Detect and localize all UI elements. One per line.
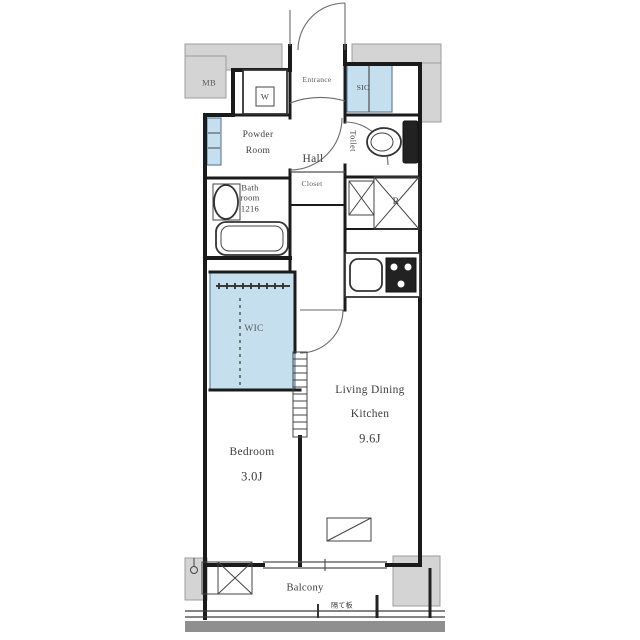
entrance-label: Entrance (302, 76, 331, 84)
wic-label: WIC (244, 325, 263, 335)
floor-plan: MB W Entrance SIC Powder Room Hall Close… (0, 0, 640, 640)
balcony-label: Balcony (286, 582, 323, 593)
toilet-tank (403, 121, 418, 163)
bathtub (216, 222, 288, 255)
toilet-bowl (367, 128, 401, 156)
bath-label-1: Bath (241, 184, 258, 193)
washbasin (214, 185, 238, 219)
closet-label: Closet (302, 180, 323, 188)
meter-box-label: MB (202, 79, 216, 88)
bedroom-size-label: 3.0J (241, 470, 263, 483)
powder-room-label-1: Powder (243, 131, 274, 141)
shoe-closet-label: SIC (357, 84, 370, 92)
bath-label-3: 1216 (241, 205, 259, 214)
hall-label: Hall (303, 153, 324, 165)
linen-shelf (207, 118, 221, 165)
ldk-label-2: Kitchen (351, 408, 390, 420)
kitchen-sink (350, 259, 382, 291)
ldk-door-arc (300, 310, 343, 353)
refrigerator-label: R (393, 198, 400, 208)
powder-room-label-2: Room (246, 147, 270, 157)
toilet-label: Toilet (349, 130, 358, 152)
floor-plan-drawing (0, 0, 640, 640)
partition-label: 隔て板 (331, 602, 353, 609)
entrance-step (290, 97, 345, 103)
balcony-slab (185, 621, 445, 632)
washer-label: W (261, 93, 269, 102)
ldk-size-label: 9.6J (359, 432, 381, 445)
bath-label-2: room (240, 194, 259, 203)
bedroom-label: Bedroom (230, 446, 275, 458)
ldk-label-1: Living Dining (335, 384, 404, 396)
entrance-door-arc (298, 3, 345, 50)
